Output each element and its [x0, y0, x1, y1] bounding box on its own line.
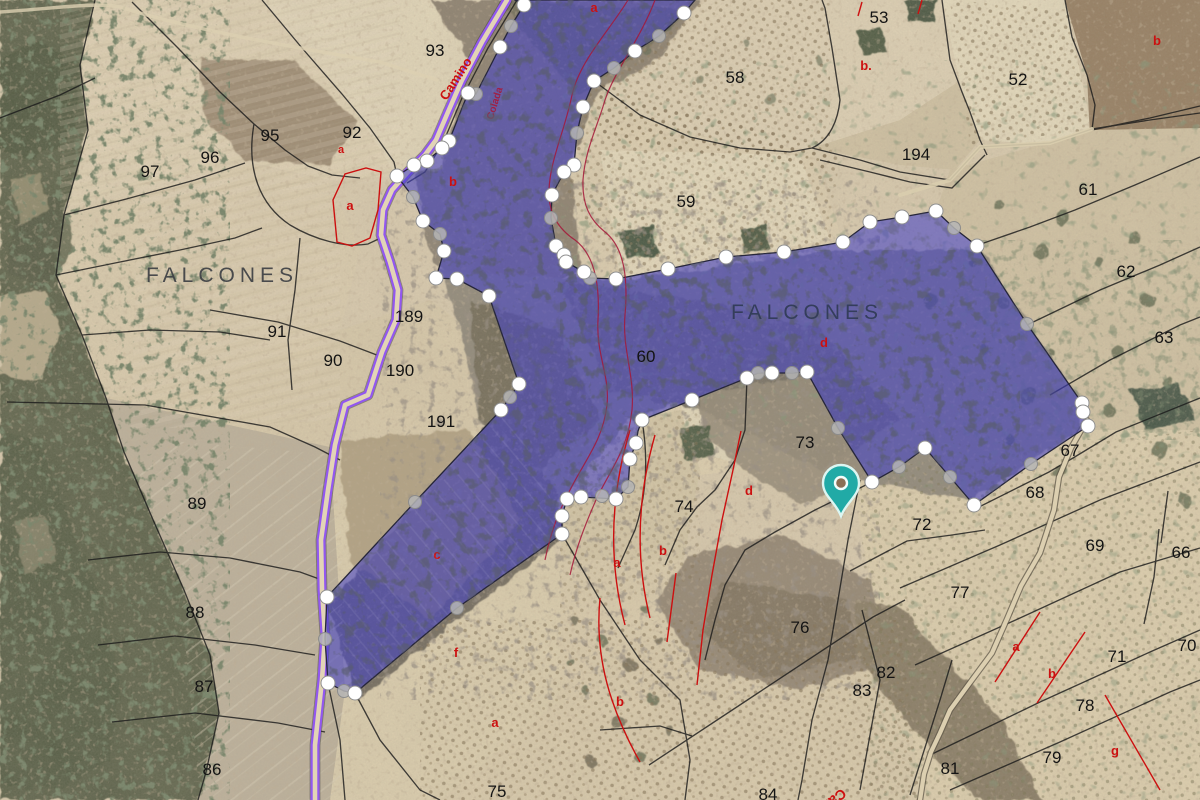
svg-text:FALCONES: FALCONES — [731, 301, 883, 324]
svg-text:69: 69 — [1086, 536, 1105, 555]
svg-text:189: 189 — [395, 307, 423, 326]
svg-text:b.: b. — [860, 58, 872, 73]
svg-text:53: 53 — [870, 8, 889, 27]
svg-text:52: 52 — [1009, 70, 1028, 89]
svg-text:71: 71 — [1108, 647, 1127, 666]
svg-text:a: a — [346, 198, 354, 213]
svg-text:90: 90 — [324, 351, 343, 370]
svg-text:95: 95 — [261, 126, 280, 145]
svg-text:d: d — [745, 483, 753, 498]
svg-text:81: 81 — [941, 759, 960, 778]
svg-text:58: 58 — [726, 68, 745, 87]
svg-text:82: 82 — [877, 663, 896, 682]
svg-text:b: b — [616, 694, 624, 709]
svg-text:66: 66 — [1172, 543, 1191, 562]
svg-text:96: 96 — [201, 148, 220, 167]
svg-text:a: a — [613, 555, 621, 570]
svg-text:72: 72 — [913, 515, 932, 534]
svg-text:60: 60 — [637, 347, 656, 366]
svg-text:b: b — [1153, 33, 1161, 48]
svg-text:194: 194 — [902, 145, 930, 164]
svg-text:92: 92 — [343, 123, 362, 142]
svg-text:79: 79 — [1043, 748, 1062, 767]
svg-text:g: g — [1111, 743, 1119, 758]
svg-text:b: b — [659, 543, 667, 558]
svg-text:84: 84 — [759, 785, 778, 800]
svg-text:a: a — [491, 715, 499, 730]
svg-text:78: 78 — [1076, 696, 1095, 715]
svg-text:83: 83 — [853, 681, 872, 700]
svg-text:75: 75 — [488, 782, 507, 800]
svg-text:68: 68 — [1026, 483, 1045, 502]
svg-text:97: 97 — [141, 162, 160, 181]
svg-text:87: 87 — [195, 677, 214, 696]
svg-text:b: b — [1048, 666, 1056, 681]
svg-text:89: 89 — [188, 494, 207, 513]
svg-text:77: 77 — [951, 583, 970, 602]
svg-text:f: f — [454, 645, 459, 660]
svg-text:86: 86 — [203, 760, 222, 779]
svg-text:91: 91 — [268, 322, 287, 341]
svg-text:a: a — [338, 144, 345, 156]
svg-text:93: 93 — [426, 41, 445, 60]
svg-text:a: a — [1012, 639, 1020, 654]
svg-text:62: 62 — [1117, 262, 1136, 281]
svg-text:61: 61 — [1079, 180, 1098, 199]
svg-text:67: 67 — [1061, 441, 1080, 460]
svg-text:FALCONES: FALCONES — [146, 264, 298, 287]
svg-text:73: 73 — [796, 433, 815, 452]
svg-text:190: 190 — [386, 361, 414, 380]
svg-text:63: 63 — [1155, 328, 1174, 347]
svg-text:191: 191 — [427, 412, 455, 431]
svg-text:74: 74 — [675, 497, 694, 516]
svg-text:70: 70 — [1178, 636, 1197, 655]
svg-text:88: 88 — [186, 603, 205, 622]
svg-text:59: 59 — [677, 192, 696, 211]
svg-text:76: 76 — [791, 618, 810, 637]
